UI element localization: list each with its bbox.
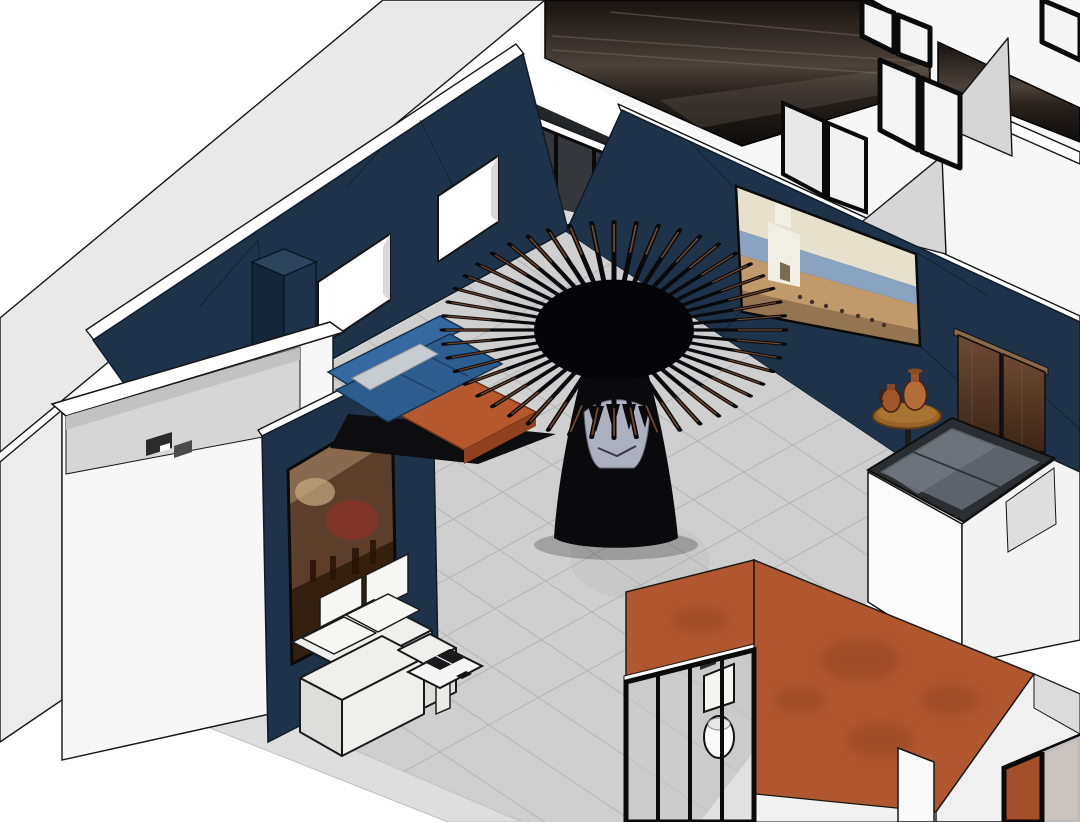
white-pillar — [898, 748, 934, 822]
figure — [352, 548, 359, 574]
figure — [310, 560, 316, 582]
texture-blotch — [820, 638, 900, 682]
window-frame — [922, 78, 960, 168]
figure — [330, 556, 336, 580]
door-leaf — [1003, 354, 1045, 452]
figure — [870, 318, 874, 322]
figure — [798, 295, 802, 299]
vase-neck — [887, 384, 895, 390]
glass-partition — [624, 644, 754, 822]
render-viewport — [0, 0, 1080, 822]
figure — [810, 300, 814, 304]
vase-lip — [908, 368, 922, 373]
figure — [856, 314, 860, 318]
texture-blotch — [774, 686, 826, 714]
vase-body — [882, 388, 901, 412]
painting-red-accent — [326, 500, 378, 540]
texture-blotch — [920, 684, 980, 716]
figure — [824, 304, 828, 308]
figure — [882, 323, 886, 327]
vase-body — [904, 380, 927, 410]
figure — [840, 309, 844, 313]
painting-sky-patch — [295, 478, 335, 506]
glass-door-pane — [828, 123, 866, 212]
texture-blotch — [672, 606, 728, 634]
isometric-scene — [0, 0, 1080, 822]
toilet-seat — [708, 718, 730, 730]
room-left-face — [0, 410, 62, 742]
figure — [370, 540, 376, 564]
spike-hub — [534, 280, 694, 381]
